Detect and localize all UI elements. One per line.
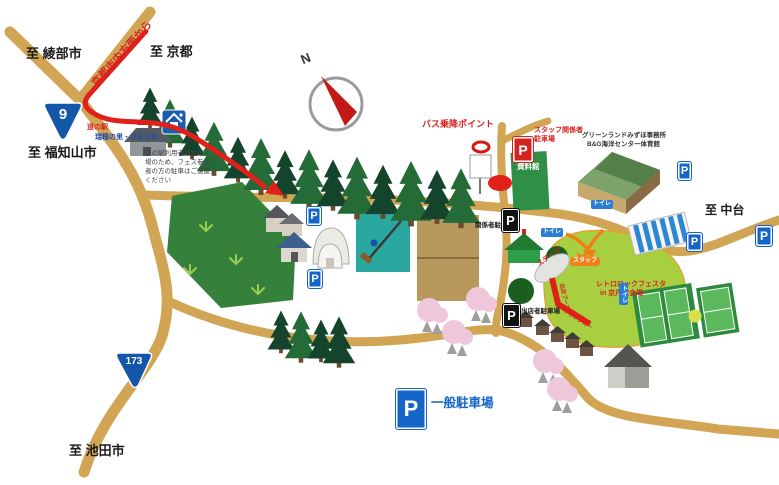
access-map: 至 綾部市 京都市内方面から 至 京都 9 道の駅 瑞穂の里・さらびき 至 福知… xyxy=(0,0,779,485)
label-staff-parking-1: スタッフ関係者 xyxy=(534,127,583,134)
map-artwork xyxy=(0,0,779,485)
parking-sign-small: P xyxy=(755,225,773,247)
route-9-number: 9 xyxy=(45,107,81,122)
parking-sign-general: P xyxy=(395,388,427,430)
label-to-kyoto: 至 京都 xyxy=(150,45,193,58)
parking-sign-small: P xyxy=(677,161,692,181)
label-gym: B&G海洋センター体育館 xyxy=(587,142,660,149)
parking-sign-officials: P xyxy=(501,208,520,233)
parking-sign-small: P xyxy=(686,232,703,252)
station-notice-line-1: 道の駅利用者様駐車 xyxy=(145,151,204,158)
label-station-name-2: 瑞穂の里・さらびき xyxy=(95,134,158,141)
parking-sign-vendors: P xyxy=(502,303,521,328)
toilet-tag: トイレ xyxy=(619,283,628,305)
parking-sign-small: P xyxy=(307,269,323,289)
label-station-name-1: 道の駅 xyxy=(87,124,108,131)
station-notice-line-3: 者の方の駐車はご遠慮 xyxy=(145,169,210,176)
label-staff-area: スタッフ xyxy=(570,257,600,266)
label-general-parking: 一般駐車場 xyxy=(431,397,494,410)
ground-golf-area xyxy=(356,213,410,272)
label-venue-1: レトロロックフェスタ xyxy=(596,281,666,288)
station-notice-line-2: 場のため、フェス参加 xyxy=(145,160,210,167)
toilet-tag: トイレ xyxy=(541,228,563,237)
bus-point-marker xyxy=(488,175,512,191)
label-to-nakadai: 至 中台 xyxy=(705,204,744,216)
parking-sign-small: P xyxy=(306,206,322,226)
label-office: グリーンランドみずほ事務所 xyxy=(582,133,666,140)
road-to-ayabe xyxy=(10,32,80,100)
label-vendors-parking: 出店者駐車場 xyxy=(521,309,560,316)
route-173-number: 173 xyxy=(117,357,151,367)
ball-court xyxy=(689,310,702,323)
label-to-fukuchiyama: 至 福知山市 xyxy=(28,146,97,159)
round-tree xyxy=(508,278,534,304)
label-to-ayabe: 至 綾部市 xyxy=(26,47,82,60)
label-bus-point: バス乗降ポイント xyxy=(422,120,494,129)
station-notice-line-4: ください xyxy=(145,178,171,185)
bus-stop xyxy=(470,142,512,194)
compass xyxy=(310,76,362,130)
dirt-ground xyxy=(417,215,479,301)
toilet-tag: トイレ xyxy=(591,200,613,209)
label-staff-parking-2: 駐車場 xyxy=(534,136,555,143)
storage-building xyxy=(604,344,652,388)
label-to-ikeda: 至 池田市 xyxy=(69,444,125,457)
label-museum: 資料館 xyxy=(517,163,540,171)
parking-sign-staff: P xyxy=(512,136,534,163)
